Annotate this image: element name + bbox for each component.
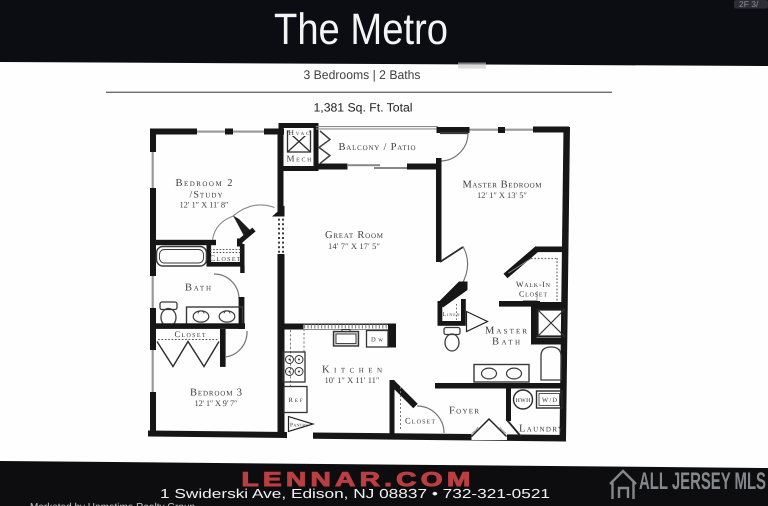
- svg-text:Bedroom 2: Bedroom 2: [176, 178, 233, 189]
- svg-text:12′ 1″ X 11′ 8″: 12′ 1″ X 11′ 8″: [180, 200, 229, 210]
- svg-text:1,381 Sq. Ft. Total: 1,381 Sq. Ft. Total: [314, 101, 413, 115]
- svg-text:ALL JERSEY MLS: ALL JERSEY MLS: [639, 468, 766, 495]
- svg-text:Closet: Closet: [175, 329, 206, 339]
- svg-text:Mech: Mech: [287, 154, 313, 164]
- svg-text:Master Bedroom: Master Bedroom: [463, 180, 543, 191]
- svg-text:Closet: Closet: [210, 253, 241, 263]
- svg-text:Ref: Ref: [289, 397, 303, 404]
- svg-text:14′ 7″ X 17′ 5″: 14′ 7″ X 17′ 5″: [328, 241, 380, 251]
- svg-text:2F 3/: 2F 3/: [739, 0, 759, 9]
- svg-text:10′ 1″ X 11′ 11″: 10′ 1″ X 11′ 11″: [325, 375, 380, 385]
- svg-text:1 Swiderski Ave, Edison, NJ 08: 1 Swiderski Ave, Edison, NJ 08837 • 732-…: [160, 486, 550, 501]
- svg-text:3 Bedrooms | 2 Baths: 3 Bedrooms | 2 Baths: [304, 68, 421, 82]
- svg-text:HWH: HWH: [516, 398, 532, 404]
- svg-text:12′ 1″ X 13′ 5″: 12′ 1″ X 13′ 5″: [477, 190, 527, 200]
- svg-text:Marketed by Hometime Realty Gr: Marketed by Hometime Realty Group: [30, 502, 196, 506]
- svg-text:W/D: W/D: [542, 397, 557, 404]
- svg-text:Linen: Linen: [443, 312, 460, 318]
- svg-text:Great Room: Great Room: [325, 230, 384, 241]
- svg-text:Bedroom 3: Bedroom 3: [190, 388, 242, 399]
- svg-text:Closet: Closet: [519, 290, 547, 299]
- svg-text:Pantry: Pantry: [290, 423, 308, 429]
- svg-text:The Metro: The Metro: [274, 5, 448, 54]
- svg-text:Bath: Bath: [185, 283, 211, 294]
- svg-text:Closet: Closet: [405, 416, 435, 426]
- svg-text:12′ 1″ X 9′ 7″: 12′ 1″ X 9′ 7″: [195, 398, 238, 408]
- svg-text:Foyer: Foyer: [449, 406, 479, 417]
- svg-text:Walk-In: Walk-In: [516, 280, 551, 289]
- svg-text:Balcony / Patio: Balcony / Patio: [339, 142, 416, 153]
